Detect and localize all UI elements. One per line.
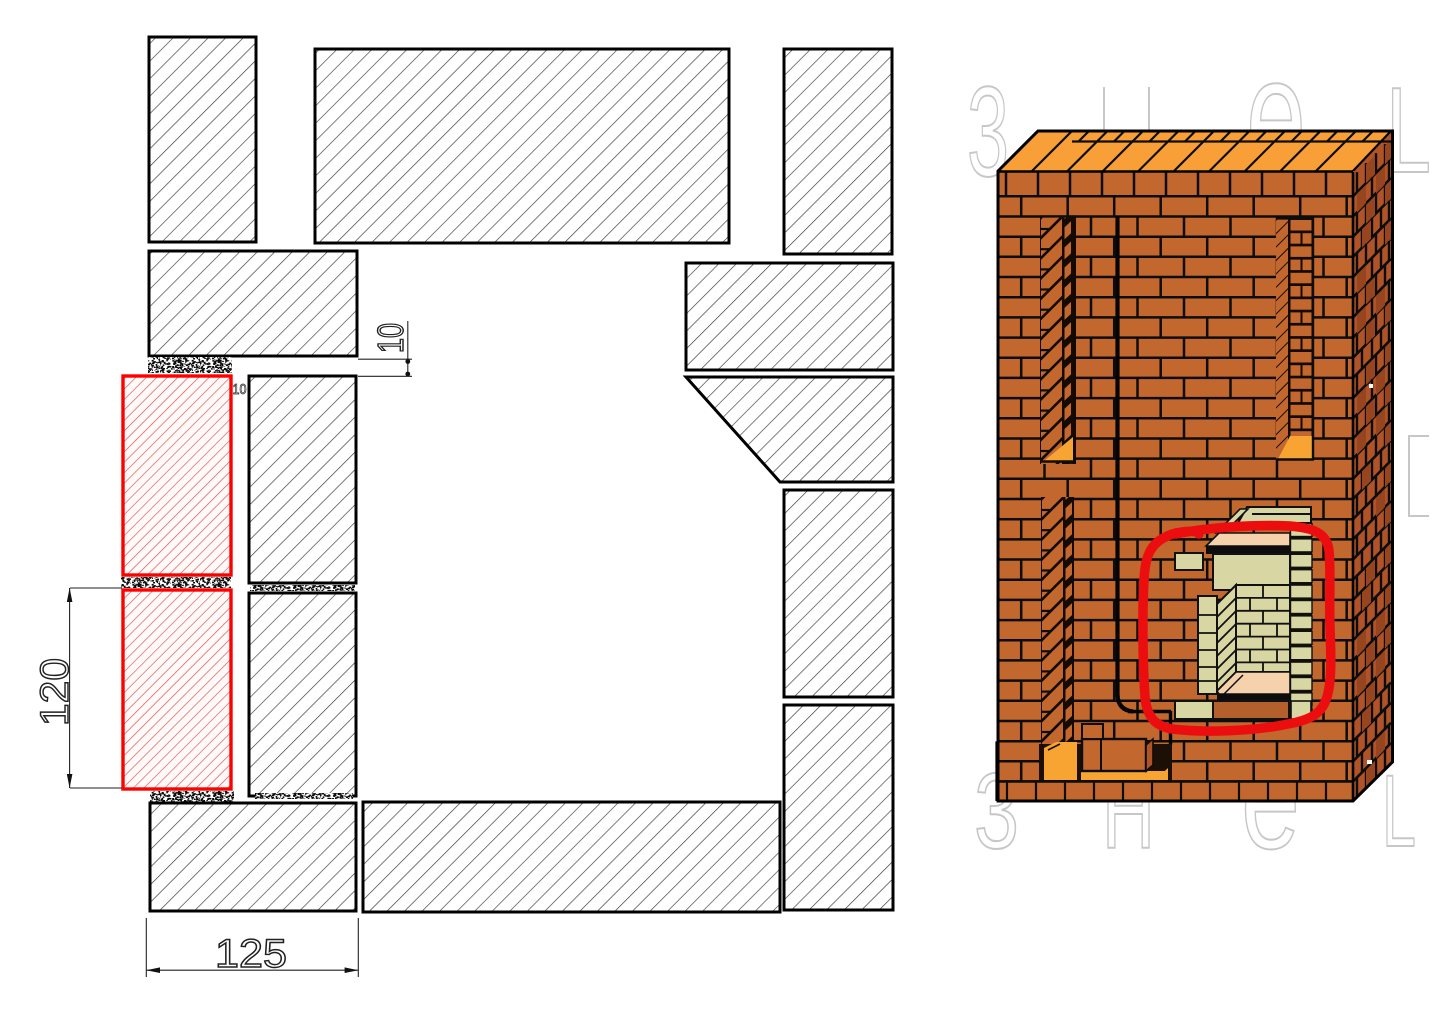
svg-text:120: 120 [33, 658, 77, 726]
svg-text:L: L [1382, 754, 1416, 868]
svg-text:10: 10 [370, 323, 411, 353]
svg-text:10: 10 [233, 381, 247, 398]
svg-text:125: 125 [215, 932, 287, 976]
